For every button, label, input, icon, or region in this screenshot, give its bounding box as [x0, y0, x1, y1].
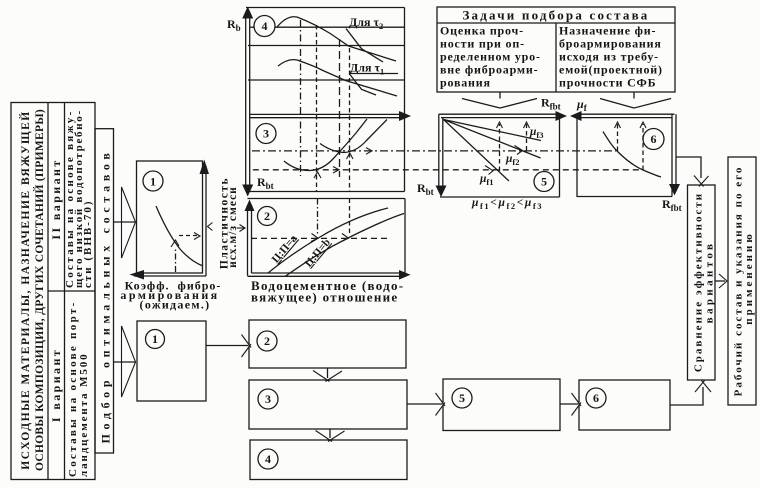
- svg-text:2: 2: [264, 209, 270, 223]
- svg-text:Назначение фи-: Назначение фи-: [559, 24, 656, 38]
- svg-text:2: 2: [264, 334, 270, 348]
- svg-text:5: 5: [541, 175, 547, 189]
- svg-text:1: 1: [152, 332, 158, 346]
- svg-text:вяжущее) отношение: вяжущее) отношение: [251, 290, 399, 305]
- svg-text:3: 3: [263, 127, 269, 141]
- svg-text:вне фиброарми-: вне фиброарми-: [440, 63, 538, 77]
- svg-text:ОСНОВЫ КОМПОЗИЦИИ, ДРУГИХ СОЧЕ: ОСНОВЫ КОМПОЗИЦИИ, ДРУГИХ СОЧЕТАНИЙ (ПРИ…: [32, 109, 46, 471]
- svg-text:сти (ВНВ-70): сти (ВНВ-70): [82, 199, 94, 288]
- svg-text:4: 4: [265, 452, 271, 466]
- svg-text:Подбор оптимальных составов: Подбор оптимальных составов: [99, 148, 113, 443]
- svg-text:Оценка проч-: Оценка проч-: [440, 24, 524, 38]
- svg-text:применению: применению: [743, 231, 755, 324]
- svg-text:I вариант: I вариант: [49, 348, 63, 422]
- svg-text:4: 4: [262, 19, 268, 33]
- svg-text:Для τ2: Для τ2: [349, 15, 383, 31]
- svg-text:прочности СФБ: прочности СФБ: [559, 76, 656, 90]
- svg-text:3: 3: [265, 392, 271, 406]
- svg-text:исходя из требу-: исходя из требу-: [559, 50, 659, 64]
- svg-text:II вариант: II вариант: [49, 158, 63, 239]
- svg-text:6: 6: [593, 391, 599, 405]
- svg-text:броармирования: броармирования: [559, 37, 662, 51]
- svg-text:исх.м/з смеси: исх.м/з смеси: [227, 186, 239, 268]
- svg-text:ределенном уро-: ределенном уро-: [440, 50, 541, 64]
- svg-text:ности при оп-: ности при оп-: [440, 37, 525, 51]
- svg-text:рования: рования: [440, 76, 491, 90]
- svg-text:Для τ1: Для τ1: [350, 61, 384, 77]
- svg-text:вариантов: вариантов: [704, 241, 716, 324]
- svg-text:емой(проектной): емой(проектной): [559, 63, 663, 77]
- svg-text:ландцемента М500: ландцемента М500: [78, 352, 90, 477]
- svg-text:ИСХОДНЫЕ МАТЕРИАЛЫ, НАЗНАЧЕНИЕ: ИСХОДНЫЕ МАТЕРИАЛЫ, НАЗНАЧЕНИЕ ВЯЖУЩЕЙ: [18, 110, 32, 470]
- svg-text:Задачи подбора состава: Задачи подбора состава: [463, 8, 650, 23]
- svg-text:(ожидаем.): (ожидаем.): [140, 298, 211, 312]
- svg-text:1: 1: [150, 175, 156, 189]
- svg-text:6: 6: [651, 132, 657, 146]
- svg-text:5: 5: [459, 391, 465, 405]
